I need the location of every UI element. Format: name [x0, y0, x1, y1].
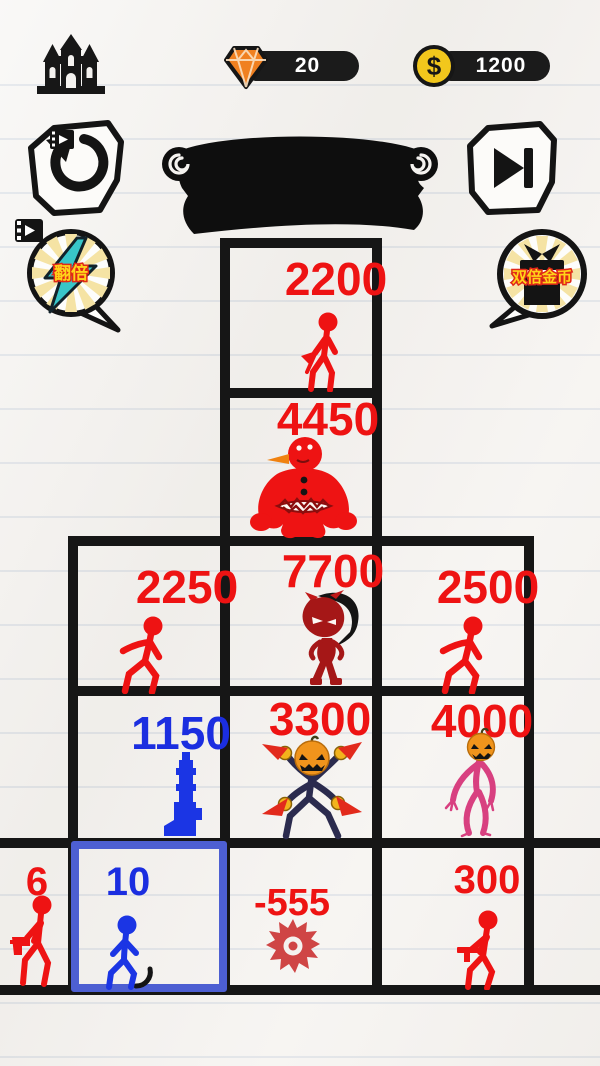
double-coins-bubble[interactable]: 双倍金币 — [484, 226, 598, 330]
scuff-mark — [136, 969, 150, 986]
pumpkin-blade-fighter-figure — [258, 734, 366, 840]
coin-icon: $ — [412, 44, 456, 88]
gun-stickman-figure — [455, 910, 511, 990]
hand-weapon — [10, 937, 30, 955]
belly-monster-figure — [247, 434, 359, 542]
standing-gun-figure — [160, 752, 210, 840]
cell-value: 10 — [106, 862, 151, 902]
level-scroll-banner — [160, 124, 440, 240]
double-power-bubble[interactable]: 翻倍 — [20, 226, 122, 334]
coin-count: 1200 — [476, 54, 527, 78]
double-coins-label: 双倍金币 — [512, 268, 572, 286]
double-power-label: 翻倍 — [54, 263, 88, 283]
restart-button[interactable] — [24, 118, 128, 222]
game-screen: 20 1200 $ — [0, 0, 600, 1066]
skip-level-button[interactable] — [462, 120, 558, 220]
walking-stickman-figure — [436, 616, 498, 694]
gem-icon — [222, 42, 270, 90]
pumpkin-head — [468, 729, 495, 761]
devil-head — [303, 597, 345, 637]
pink-pumpkin-stickman-figure — [438, 728, 512, 842]
cell-value: 7700 — [282, 548, 384, 594]
cell-value: 2250 — [136, 564, 238, 610]
walking-stickman-figure — [116, 616, 178, 694]
cell-value: 2200 — [285, 256, 387, 302]
cell-value: -555 — [254, 884, 330, 922]
cell-value: 300 — [454, 860, 521, 900]
hooded-devil-figure — [288, 590, 366, 688]
cell-value: 1150 — [131, 710, 231, 756]
ally-walking-stickman-figure — [98, 914, 162, 990]
gem-count: 20 — [295, 54, 320, 78]
svg-text:$: $ — [427, 51, 442, 81]
grid-cell-empty[interactable] — [524, 838, 600, 995]
castle-home-icon[interactable] — [33, 34, 109, 94]
gun-stickman-figure — [10, 893, 70, 987]
pumpkin-head — [295, 737, 329, 775]
ad-film-icon — [50, 130, 74, 149]
saw-blade-icon — [266, 919, 320, 973]
cell-value: 2500 — [437, 564, 539, 610]
axe-stickman-figure — [300, 312, 352, 392]
